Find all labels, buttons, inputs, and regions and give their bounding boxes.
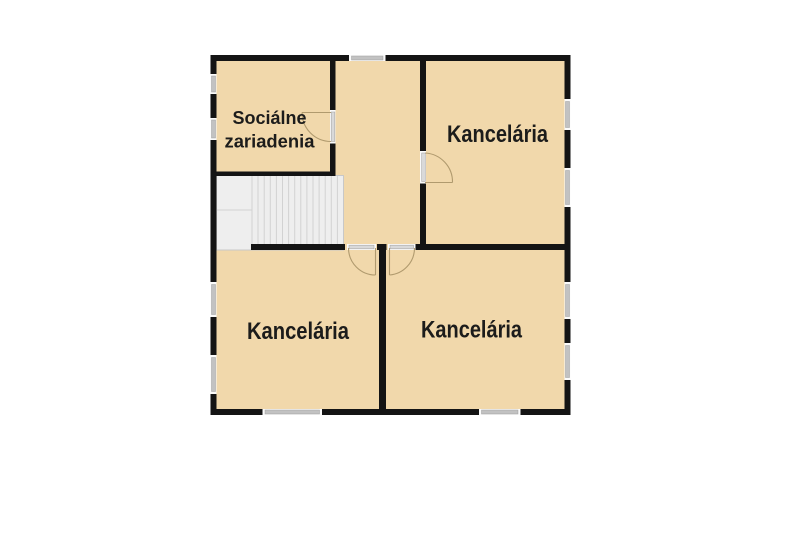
svg-text:Kancelária: Kancelária <box>421 317 523 344</box>
svg-text:Kancelária: Kancelária <box>447 121 549 148</box>
svg-text:Kancelária: Kancelária <box>247 318 350 345</box>
svg-text:Sociálne: Sociálne <box>233 108 307 128</box>
svg-text:zariadenia: zariadenia <box>225 132 316 152</box>
